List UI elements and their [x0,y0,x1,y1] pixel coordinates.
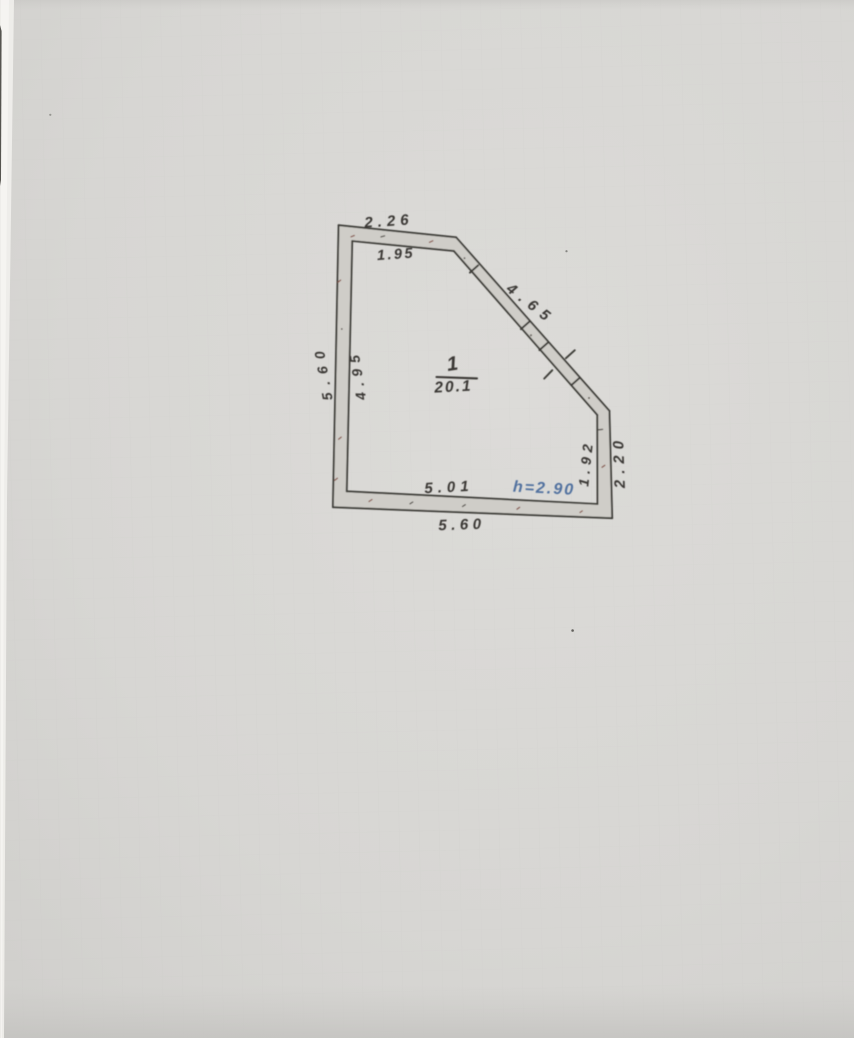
svg-text:2.20: 2.20 [610,435,629,490]
svg-text:1.95: 1.95 [376,246,415,265]
svg-text:2.26: 2.26 [363,211,414,231]
svg-text:5.01: 5.01 [424,478,474,498]
svg-text:h=2.90: h=2.90 [512,479,575,499]
svg-text:5.60: 5.60 [438,516,486,535]
svg-text:20.1: 20.1 [433,378,473,397]
